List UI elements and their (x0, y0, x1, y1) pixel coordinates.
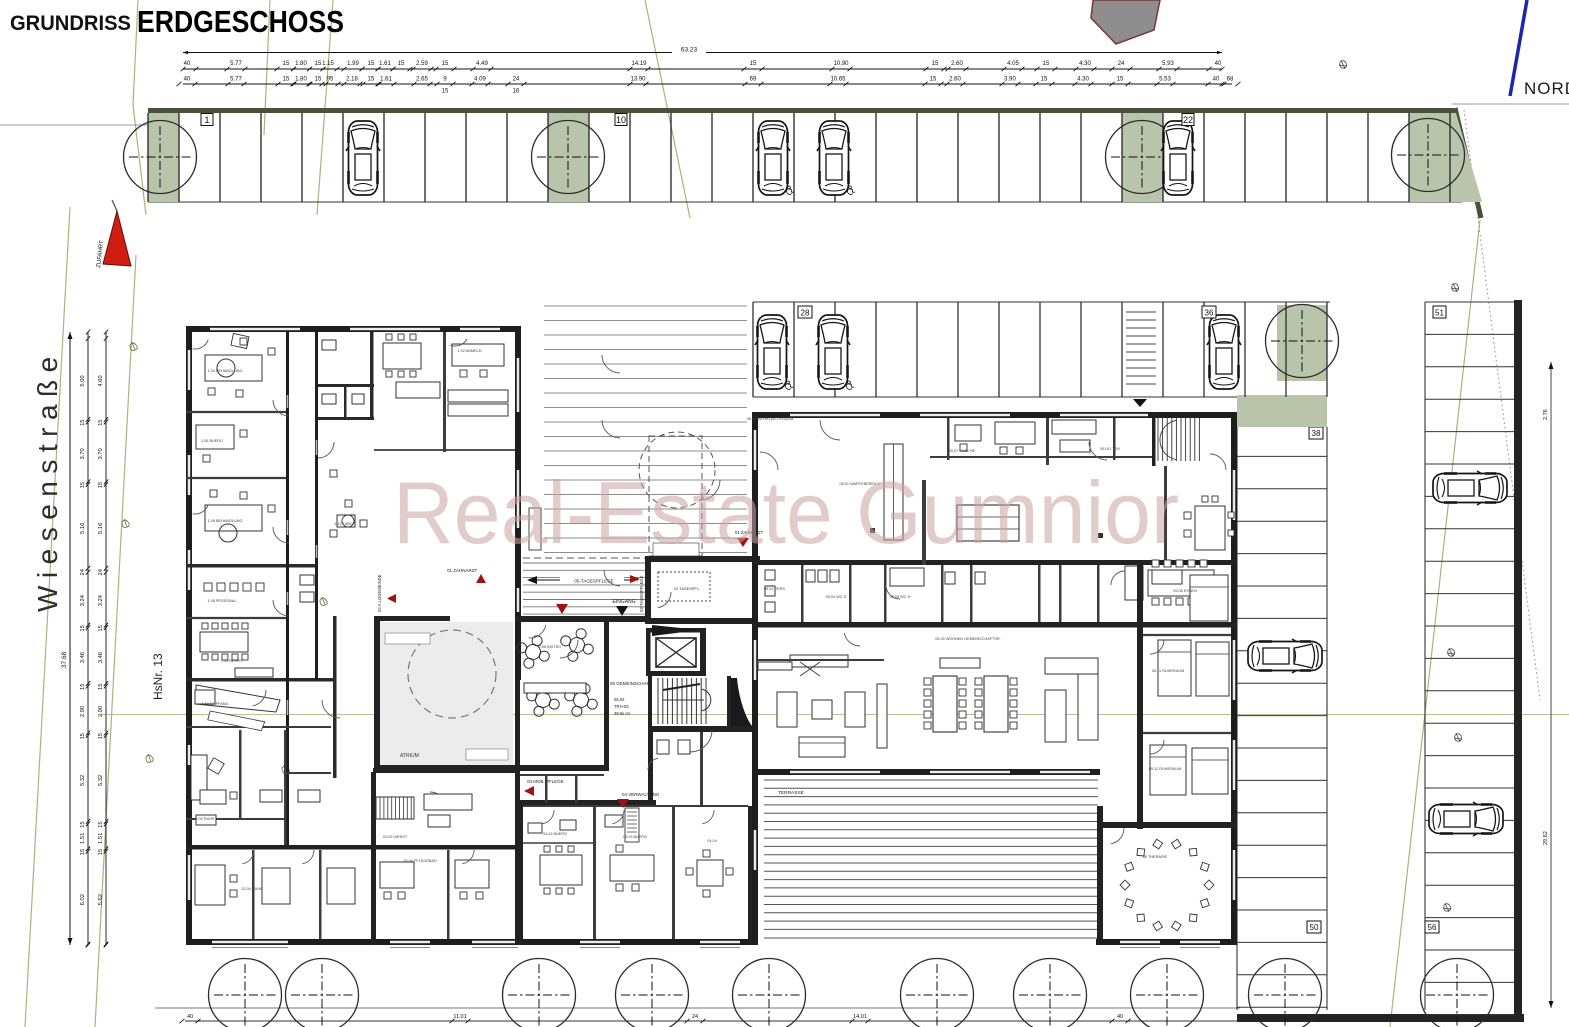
svg-text:15: 15 (80, 482, 86, 488)
svg-text:40: 40 (184, 61, 191, 67)
svg-text:05.UG TRH: 05.UG TRH (1100, 447, 1120, 451)
svg-text:2.06 BISTRO: 2.06 BISTRO (539, 645, 562, 649)
svg-text:4.60: 4.60 (98, 375, 104, 386)
svg-text:2.02 RUHE: 2.02 RUHE (195, 817, 215, 821)
svg-text:3.70: 3.70 (80, 448, 86, 459)
svg-text:05.04 WC D: 05.04 WC D (826, 595, 847, 599)
svg-text:11.01: 11.01 (453, 1014, 466, 1020)
svg-text:40: 40 (1215, 61, 1222, 67)
svg-text:3.70: 3.70 (98, 448, 104, 459)
svg-text:02 A.LOGEMEINDE: 02 A.LOGEMEINDE (377, 574, 382, 612)
svg-text:15: 15 (315, 61, 322, 67)
svg-text:1.06 BEHANDLUNG: 1.06 BEHANDLUNG (208, 519, 243, 523)
svg-text:1.51: 1.51 (98, 833, 104, 844)
svg-text:40: 40 (187, 1014, 193, 1020)
svg-text:1.15: 1.15 (322, 61, 334, 67)
svg-text:51: 51 (1435, 309, 1444, 318)
svg-text:2.90: 2.90 (98, 706, 104, 717)
svg-text:1.61: 1.61 (379, 61, 391, 67)
svg-text:01 ZAHNARZT: 01 ZAHNARZT (447, 568, 478, 573)
svg-text:04.03 BUERO: 04.03 BUERO (623, 835, 647, 839)
svg-text:NORD: NORD (1524, 79, 1569, 98)
svg-text:16: 16 (513, 89, 520, 95)
svg-text:15: 15 (80, 849, 86, 855)
svg-text:14.01: 14.01 (853, 1014, 867, 1020)
svg-text:68: 68 (1227, 77, 1234, 83)
svg-text:15: 15 (98, 849, 104, 855)
svg-text:15: 15 (398, 61, 405, 67)
svg-text:15: 15 (315, 77, 322, 83)
svg-text:40: 40 (1213, 77, 1220, 83)
svg-text:10.65: 10.65 (830, 77, 846, 83)
svg-text:15: 15 (98, 482, 104, 488)
svg-text:4.09: 4.09 (474, 77, 486, 83)
svg-text:5.53: 5.53 (1159, 77, 1171, 83)
svg-text:22: 22 (1183, 115, 1193, 125)
svg-text:15: 15 (1043, 61, 1050, 67)
svg-text:05.12 RUHERAUM: 05.12 RUHERAUM (1149, 767, 1182, 771)
svg-text:5.16: 5.16 (80, 523, 86, 534)
svg-text:24: 24 (513, 77, 520, 83)
svg-text:5.77: 5.77 (230, 61, 242, 67)
svg-text:24: 24 (692, 1014, 698, 1020)
svg-text:15: 15 (750, 61, 757, 67)
svg-text:3.46: 3.46 (80, 652, 86, 663)
svg-text:1.04 BEHANDLUNG: 1.04 BEHANDLUNG (208, 369, 243, 373)
svg-text:1.99: 1.99 (347, 61, 359, 67)
svg-text:15: 15 (442, 89, 449, 95)
svg-text:6.02: 6.02 (80, 894, 86, 905)
svg-text:50: 50 (1310, 923, 1319, 932)
svg-text:4.30: 4.30 (1077, 77, 1089, 83)
svg-text:15: 15 (932, 61, 939, 67)
svg-text:4.30: 4.30 (1079, 61, 1091, 67)
svg-text:03 MOB. PFLEGE: 03 MOB. PFLEGE (527, 779, 564, 784)
svg-text:24: 24 (1118, 61, 1125, 67)
svg-text:56: 56 (1428, 923, 1437, 932)
svg-text:2.60: 2.60 (951, 61, 963, 67)
svg-text:3.24: 3.24 (98, 594, 104, 606)
svg-text:02 TAGESPFL.: 02 TAGESPFL. (674, 587, 700, 591)
svg-text:29.62: 29.62 (1543, 831, 1549, 845)
svg-text:05.02: 05.02 (614, 697, 625, 702)
svg-text:05-TAGESPFLEGE: 05-TAGESPFLEGE (574, 579, 613, 584)
svg-text:ATRIUM: ATRIUM (400, 753, 419, 759)
svg-text:1.08 PERSONAL: 1.08 PERSONAL (207, 599, 236, 603)
svg-text:ERDGESCHOSS: ERDGESCHOSS (137, 4, 344, 39)
svg-text:1.09 BESPR.: 1.09 BESPR. (221, 659, 243, 663)
svg-text:1.10 EMPFANG: 1.10 EMPFANG (201, 702, 228, 706)
svg-text:4.05: 4.05 (1007, 61, 1019, 67)
svg-text:40: 40 (1117, 1014, 1123, 1020)
svg-text:15: 15 (1117, 77, 1124, 83)
svg-text:2.60: 2.60 (949, 77, 961, 83)
svg-text:3.46: 3.46 (98, 652, 104, 663)
svg-text:5.00: 5.00 (80, 375, 86, 386)
svg-text:15: 15 (1041, 77, 1048, 83)
svg-text:10: 10 (616, 115, 626, 125)
svg-text:5.32: 5.32 (80, 775, 86, 786)
svg-text:05.09 WOHNEN GEMEINSCHAFTSR.: 05.09 WOHNEN GEMEINSCHAFTSR. (935, 637, 1000, 641)
svg-text:37.68: 37.68 (61, 651, 68, 668)
svg-text:13.90: 13.90 (630, 77, 646, 83)
svg-text:15: 15 (80, 733, 86, 739)
svg-text:05 GEMEINSCHAFT: 05 GEMEINSCHAFT (610, 681, 652, 686)
svg-text:04.02 BUERO: 04.02 BUERO (543, 832, 567, 836)
svg-text:15: 15 (283, 61, 290, 67)
svg-text:24: 24 (98, 568, 104, 575)
svg-text:38: 38 (1312, 429, 1321, 438)
svg-text:Wiesenstraße: Wiesenstraße (32, 349, 63, 612)
svg-text:05.07 KUECHE: 05.07 KUECHE (949, 449, 976, 453)
svg-text:5.93: 5.93 (1162, 61, 1174, 67)
svg-text:15: 15 (80, 625, 86, 631)
svg-text:TRH-02: TRH-02 (614, 704, 629, 709)
svg-text:15: 15 (98, 684, 104, 690)
svg-text:HsNr. 13: HsNr. 13 (151, 653, 165, 700)
svg-text:15: 15 (98, 625, 104, 631)
svg-text:15: 15 (80, 821, 86, 827)
svg-text:03.02 DIENST: 03.02 DIENST (383, 835, 408, 839)
svg-text:15: 15 (80, 684, 86, 690)
svg-text:3.24: 3.24 (80, 594, 86, 606)
svg-text:1.51: 1.51 (80, 833, 86, 844)
svg-text:24: 24 (80, 568, 86, 575)
svg-text:1.80: 1.80 (295, 61, 307, 67)
svg-text:04.04: 04.04 (707, 839, 717, 843)
svg-text:15: 15 (368, 77, 375, 83)
svg-text:36: 36 (1205, 309, 1214, 318)
svg-text:02.04 RUHE: 02.04 RUHE (241, 887, 263, 891)
svg-text:Real-Estate Gumnior: Real-Estate Gumnior (393, 463, 1179, 562)
svg-text:05.11 RUHERAUM: 05.11 RUHERAUM (1152, 669, 1184, 673)
svg-text:1: 1 (204, 115, 209, 125)
svg-text:14.19: 14.19 (631, 61, 647, 67)
svg-text:10.90: 10.90 (833, 61, 849, 67)
svg-text:05 THERAPIE: 05 THERAPIE (1143, 855, 1168, 859)
svg-text:05.03 MEHRZWECKRAUM: 05.03 MEHRZWECKRAUM (747, 417, 794, 421)
svg-text:3.90: 3.90 (1004, 77, 1016, 83)
svg-text:4.49: 4.49 (476, 61, 488, 67)
svg-text:TERRASSE: TERRASSE (778, 790, 804, 796)
svg-text:1.02 ANMELD.: 1.02 ANMELD. (457, 349, 482, 353)
svg-text:38.9x m²: 38.9x m² (614, 711, 631, 716)
svg-text:5.62: 5.62 (98, 894, 104, 905)
svg-text:15: 15 (98, 733, 104, 739)
svg-text:05.08 ESSEN: 05.08 ESSEN (1173, 589, 1197, 593)
svg-text:EINGANG: EINGANG (612, 599, 635, 605)
svg-text:15: 15 (98, 821, 104, 827)
svg-text:1.12 LABOR: 1.12 LABOR (334, 522, 356, 526)
svg-text:28: 28 (801, 309, 810, 318)
svg-text:1.61: 1.61 (380, 77, 392, 83)
svg-text:95: 95 (327, 77, 334, 83)
svg-text:03.04 PFLEGEBAD: 03.04 PFLEGEBAD (403, 859, 437, 863)
svg-text:1.05 BUERO: 1.05 BUERO (201, 439, 223, 443)
svg-text:63.23: 63.23 (681, 47, 698, 54)
svg-text:2.76: 2.76 (1543, 409, 1549, 420)
svg-text:03-TAGESPFLEGE: 03-TAGESPFLEGE (639, 575, 644, 612)
svg-text:2.59: 2.59 (416, 61, 428, 67)
svg-text:2.65: 2.65 (416, 77, 428, 83)
svg-text:15: 15 (283, 77, 290, 83)
svg-text:15: 15 (442, 61, 449, 67)
svg-text:2.18: 2.18 (346, 77, 358, 83)
svg-text:5.16: 5.16 (98, 523, 104, 534)
svg-text:GRUNDRISS: GRUNDRISS (10, 12, 131, 35)
svg-text:69: 69 (750, 77, 757, 83)
svg-text:04 VERWALTUNG: 04 VERWALTUNG (622, 792, 660, 797)
svg-text:15: 15 (98, 419, 104, 425)
svg-text:05.02 PERS.: 05.02 PERS. (764, 587, 786, 591)
svg-text:15: 15 (930, 77, 937, 83)
svg-text:15: 15 (368, 61, 375, 67)
svg-text:1.80: 1.80 (295, 77, 307, 83)
svg-text:2.90: 2.90 (80, 706, 86, 717)
svg-text:15: 15 (80, 419, 86, 425)
svg-text:40: 40 (184, 77, 191, 83)
svg-text:5.32: 5.32 (98, 775, 104, 786)
svg-text:5.77: 5.77 (230, 77, 242, 83)
